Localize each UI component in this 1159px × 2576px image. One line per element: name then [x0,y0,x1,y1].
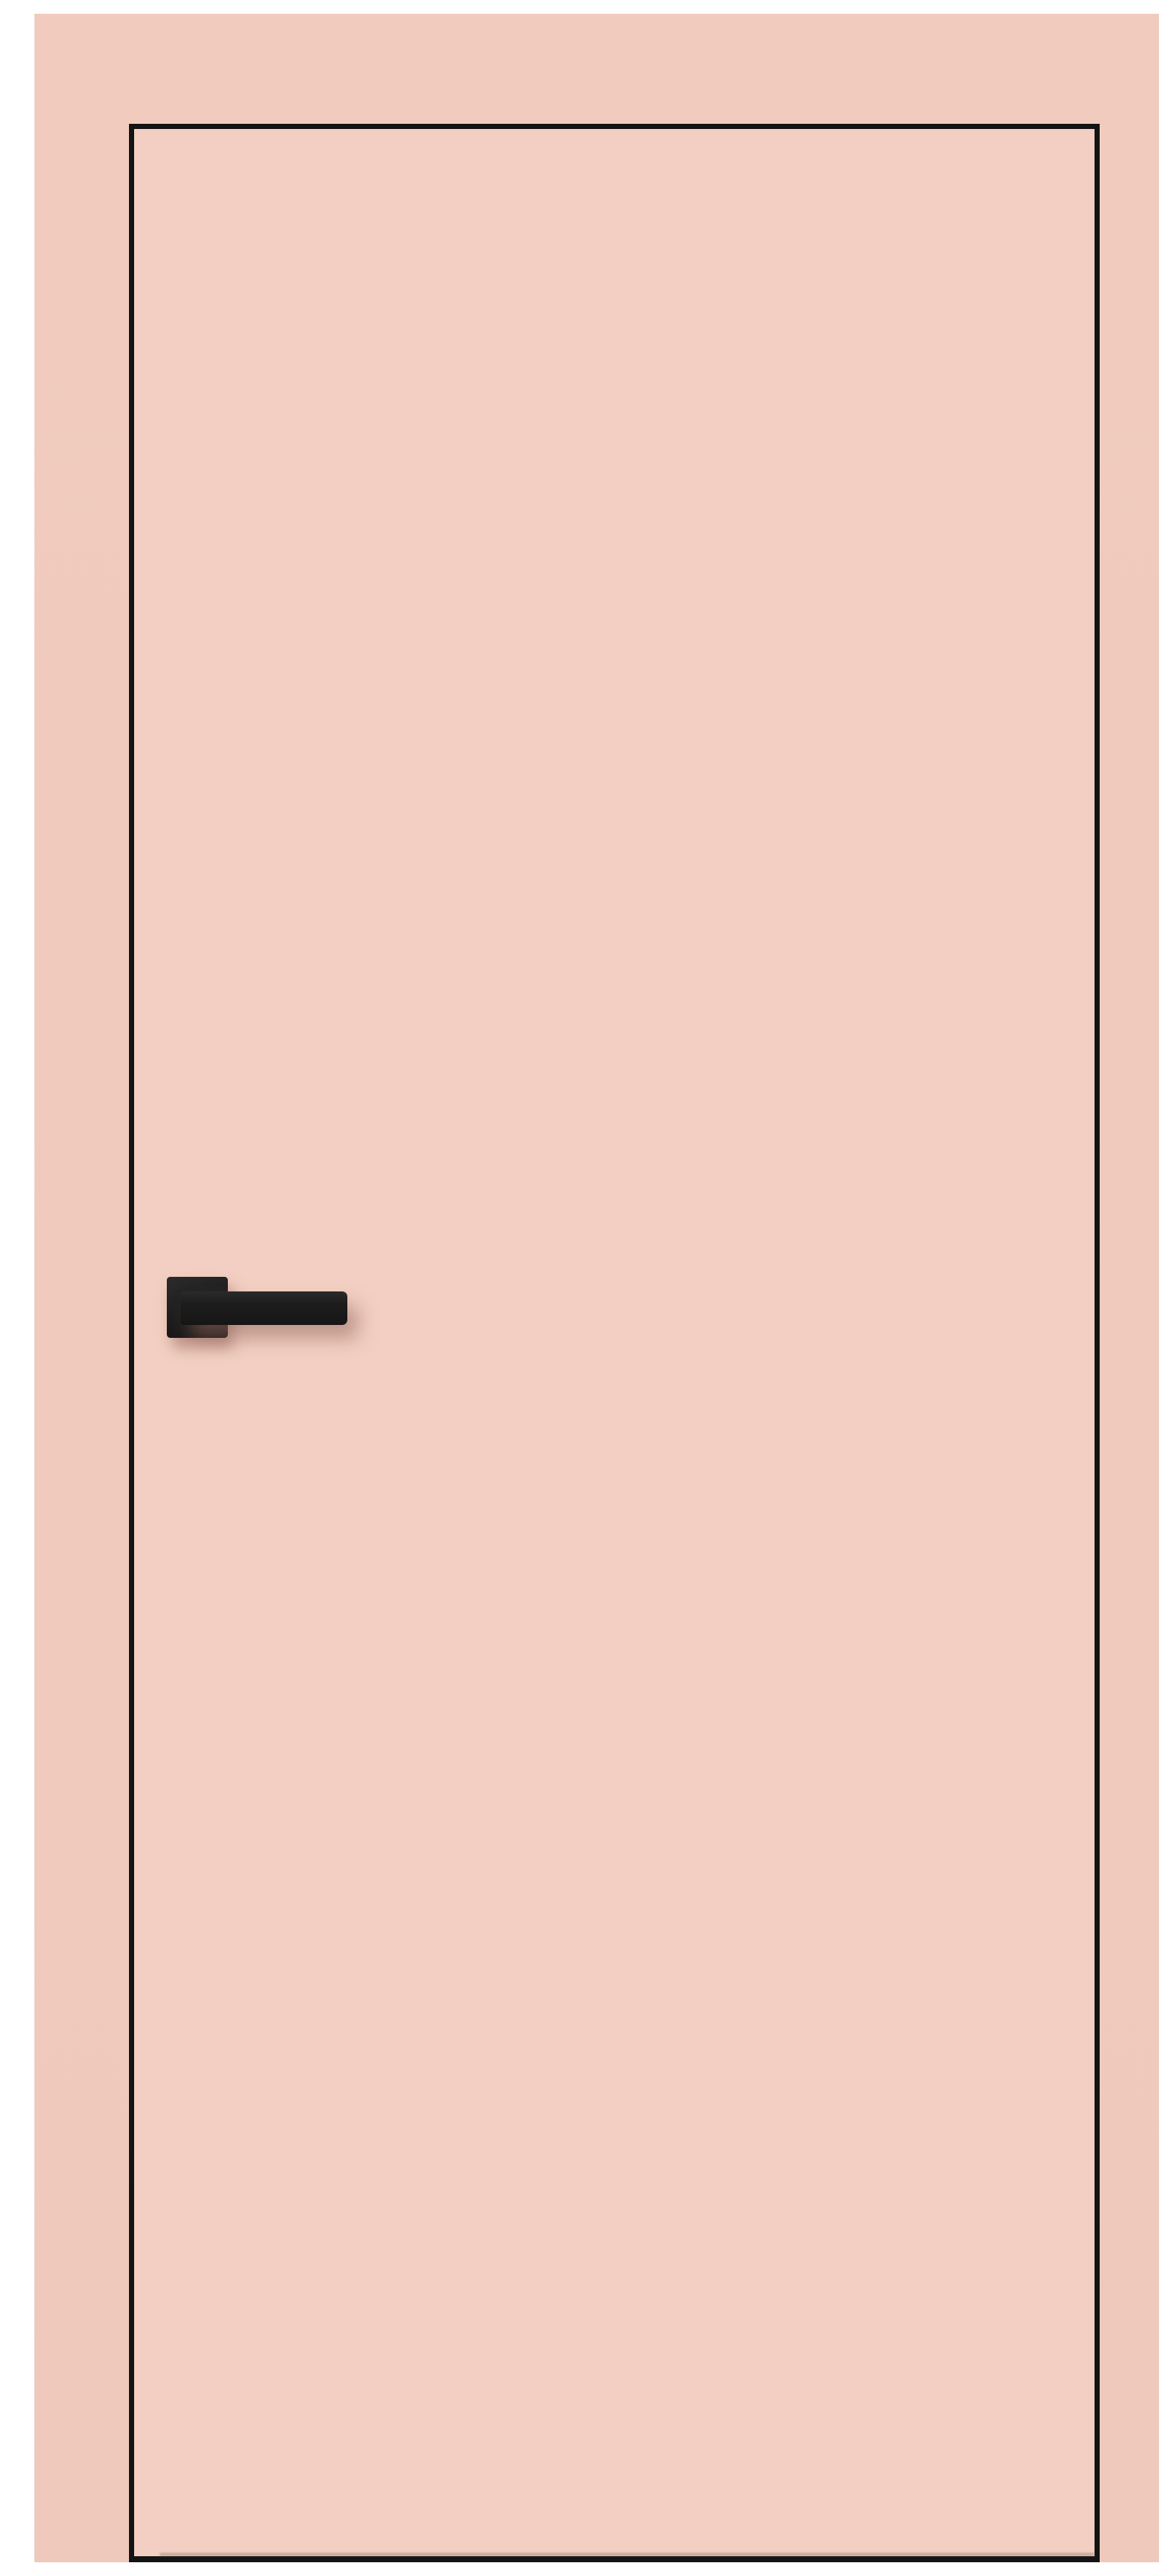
door-bottom-seam-shadow [160,2553,1095,2556]
door-panel [129,124,1100,2562]
door-product-image [34,14,1159,2562]
door-handle [160,1271,452,1383]
handle-lever [181,1291,347,1325]
